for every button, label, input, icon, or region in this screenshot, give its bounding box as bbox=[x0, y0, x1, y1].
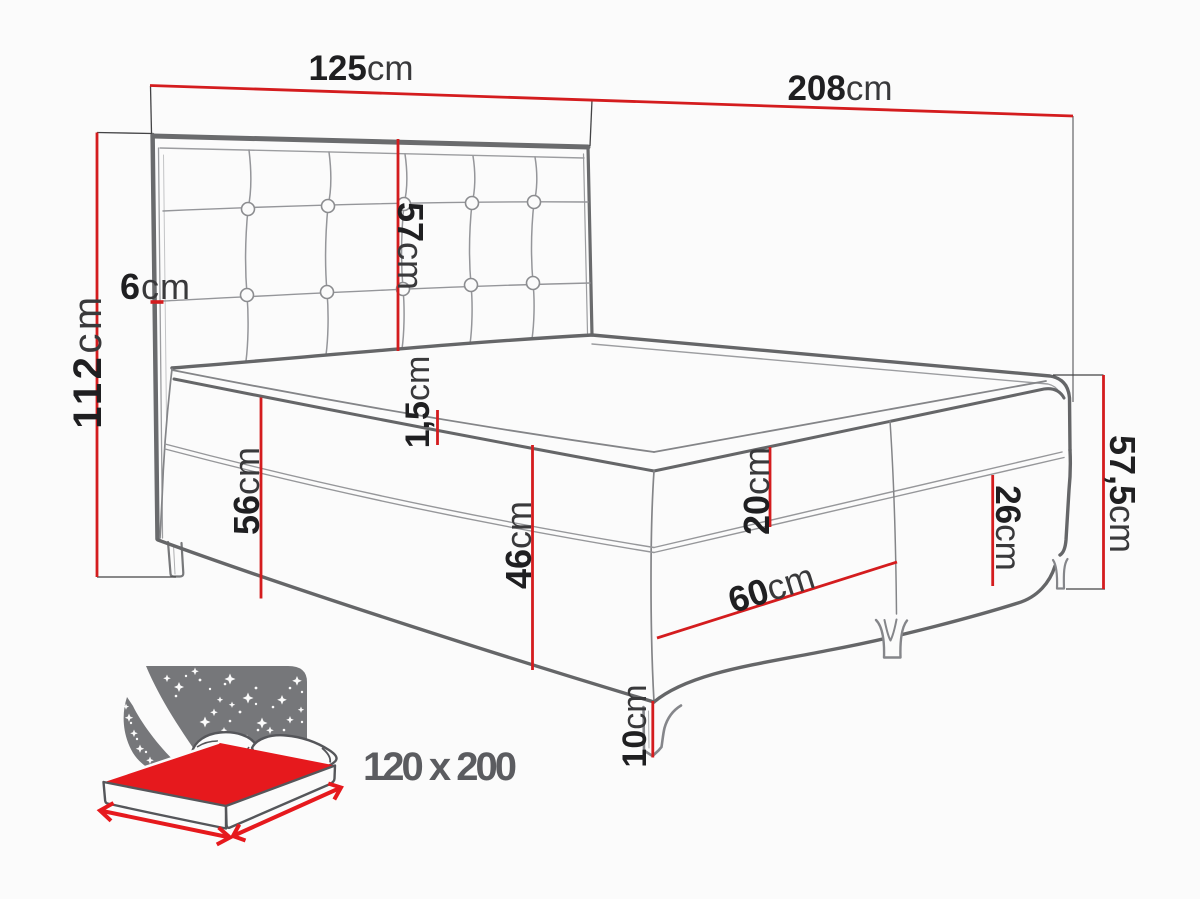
svg-text:57cm: 57cm bbox=[390, 202, 431, 290]
svg-text:57,5cm: 57,5cm bbox=[1102, 435, 1143, 553]
svg-text:125cm: 125cm bbox=[308, 49, 413, 88]
svg-text:46cm: 46cm bbox=[498, 501, 539, 589]
svg-text:208cm: 208cm bbox=[787, 69, 892, 108]
svg-text:6cm: 6cm bbox=[120, 266, 191, 307]
svg-text:120 x 200: 120 x 200 bbox=[363, 745, 516, 789]
svg-text:26cm: 26cm bbox=[988, 485, 1027, 571]
svg-text:56cm: 56cm bbox=[226, 447, 267, 535]
svg-text:112cm: 112cm bbox=[66, 293, 110, 428]
svg-text:10cm: 10cm bbox=[616, 684, 654, 767]
svg-text:1,5cm: 1,5cm bbox=[399, 356, 437, 449]
svg-text:20cm: 20cm bbox=[736, 447, 777, 535]
